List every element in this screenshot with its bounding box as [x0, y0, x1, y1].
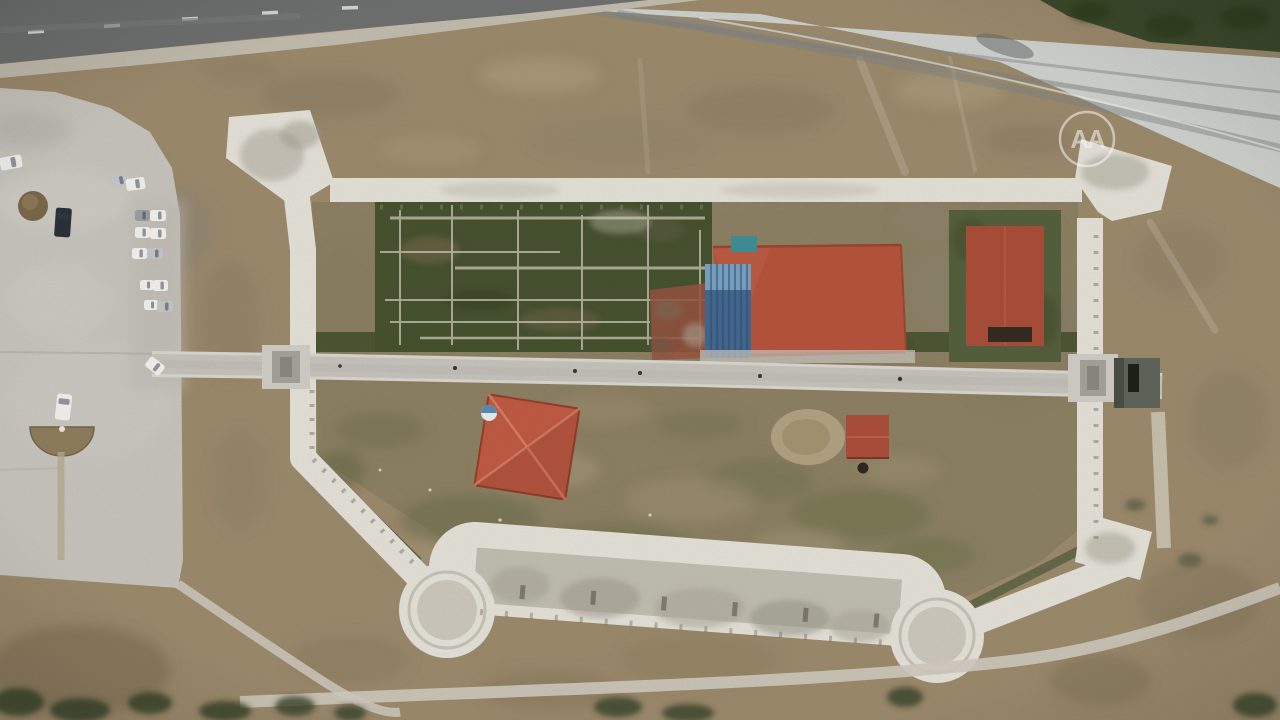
aerial-photo: AA	[0, 0, 1280, 720]
aerial-photo-canvas: AA	[0, 0, 1280, 720]
vignette	[0, 0, 1280, 720]
